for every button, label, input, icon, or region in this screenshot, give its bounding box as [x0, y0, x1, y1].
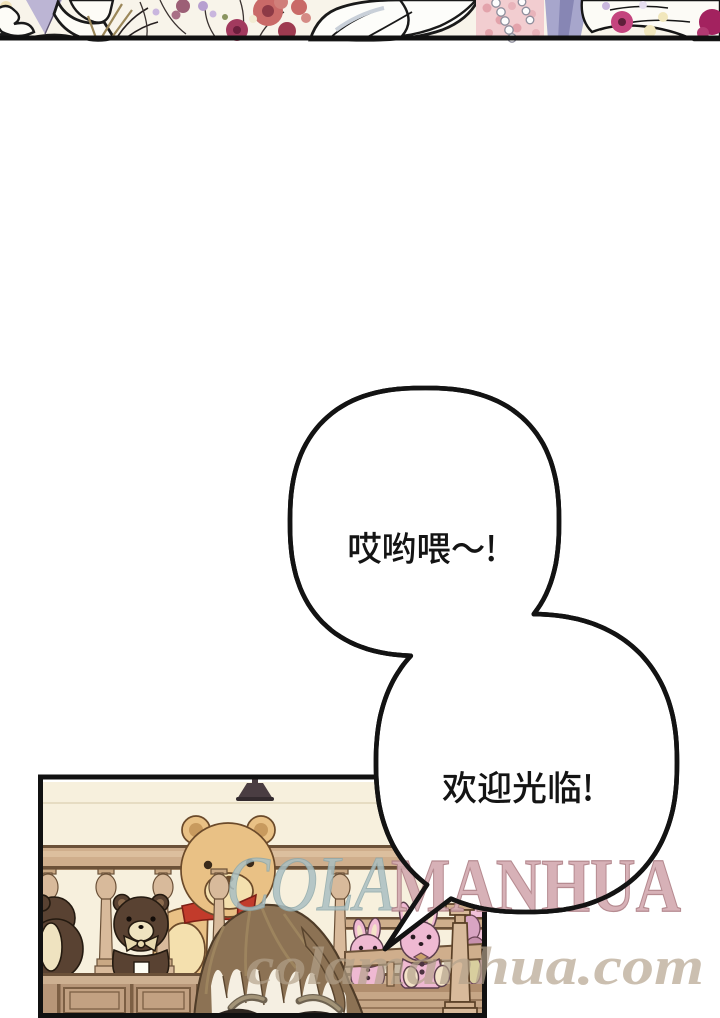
- svg-text:colamanhua.com: colamanhua.com: [246, 936, 704, 996]
- svg-text:COLA: COLA: [226, 840, 394, 927]
- svg-text:MANHUA: MANHUA: [391, 844, 681, 928]
